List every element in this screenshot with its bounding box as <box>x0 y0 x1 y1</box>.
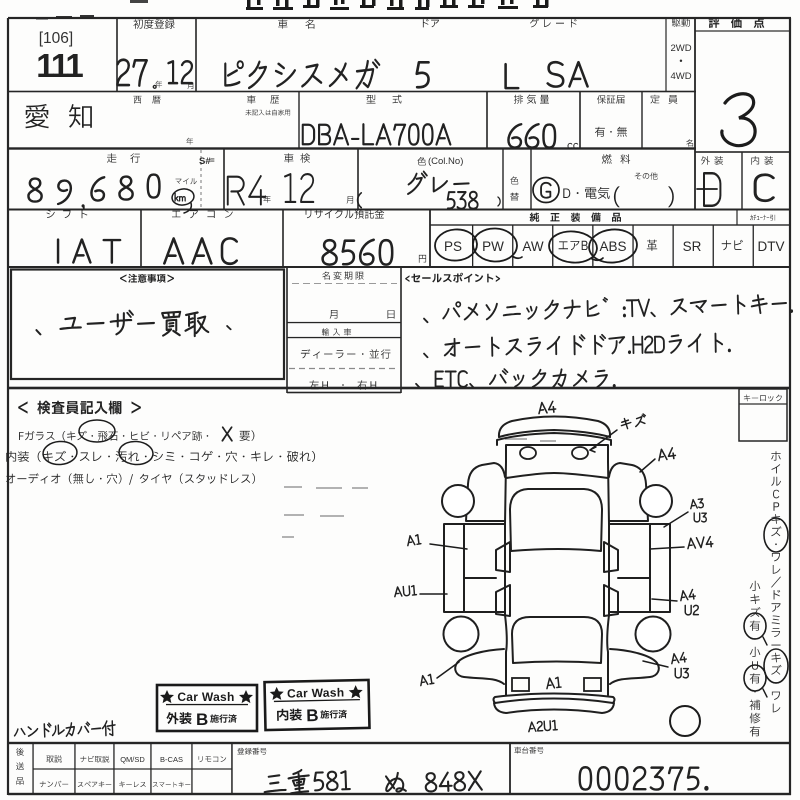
svg-text:Car Wash: Car Wash <box>287 685 345 700</box>
svg-text:ABS: ABS <box>599 239 626 254</box>
svg-text:B: B <box>196 710 208 729</box>
svg-text:PS: PS <box>444 239 462 254</box>
svg-text:=: = <box>210 156 215 165</box>
svg-text:B: B <box>306 706 319 725</box>
svg-text:•: • <box>679 56 682 66</box>
svg-text:111: 111 <box>36 47 83 84</box>
svg-text:4WD: 4WD <box>670 71 691 82</box>
svg-text:Car Wash: Car Wash <box>177 690 234 704</box>
svg-text:(Col.No): (Col.No) <box>428 156 463 167</box>
svg-text:B-CAS: B-CAS <box>160 755 183 764</box>
svg-text:DTV: DTV <box>758 239 785 254</box>
svg-text:SR: SR <box>683 239 702 254</box>
svg-text:AW: AW <box>522 239 544 254</box>
svg-text:2WD: 2WD <box>670 43 691 54</box>
svg-text:QM/SD: QM/SD <box>120 755 145 764</box>
svg-text:PW: PW <box>482 239 504 254</box>
svg-text:[106]: [106] <box>39 30 73 47</box>
